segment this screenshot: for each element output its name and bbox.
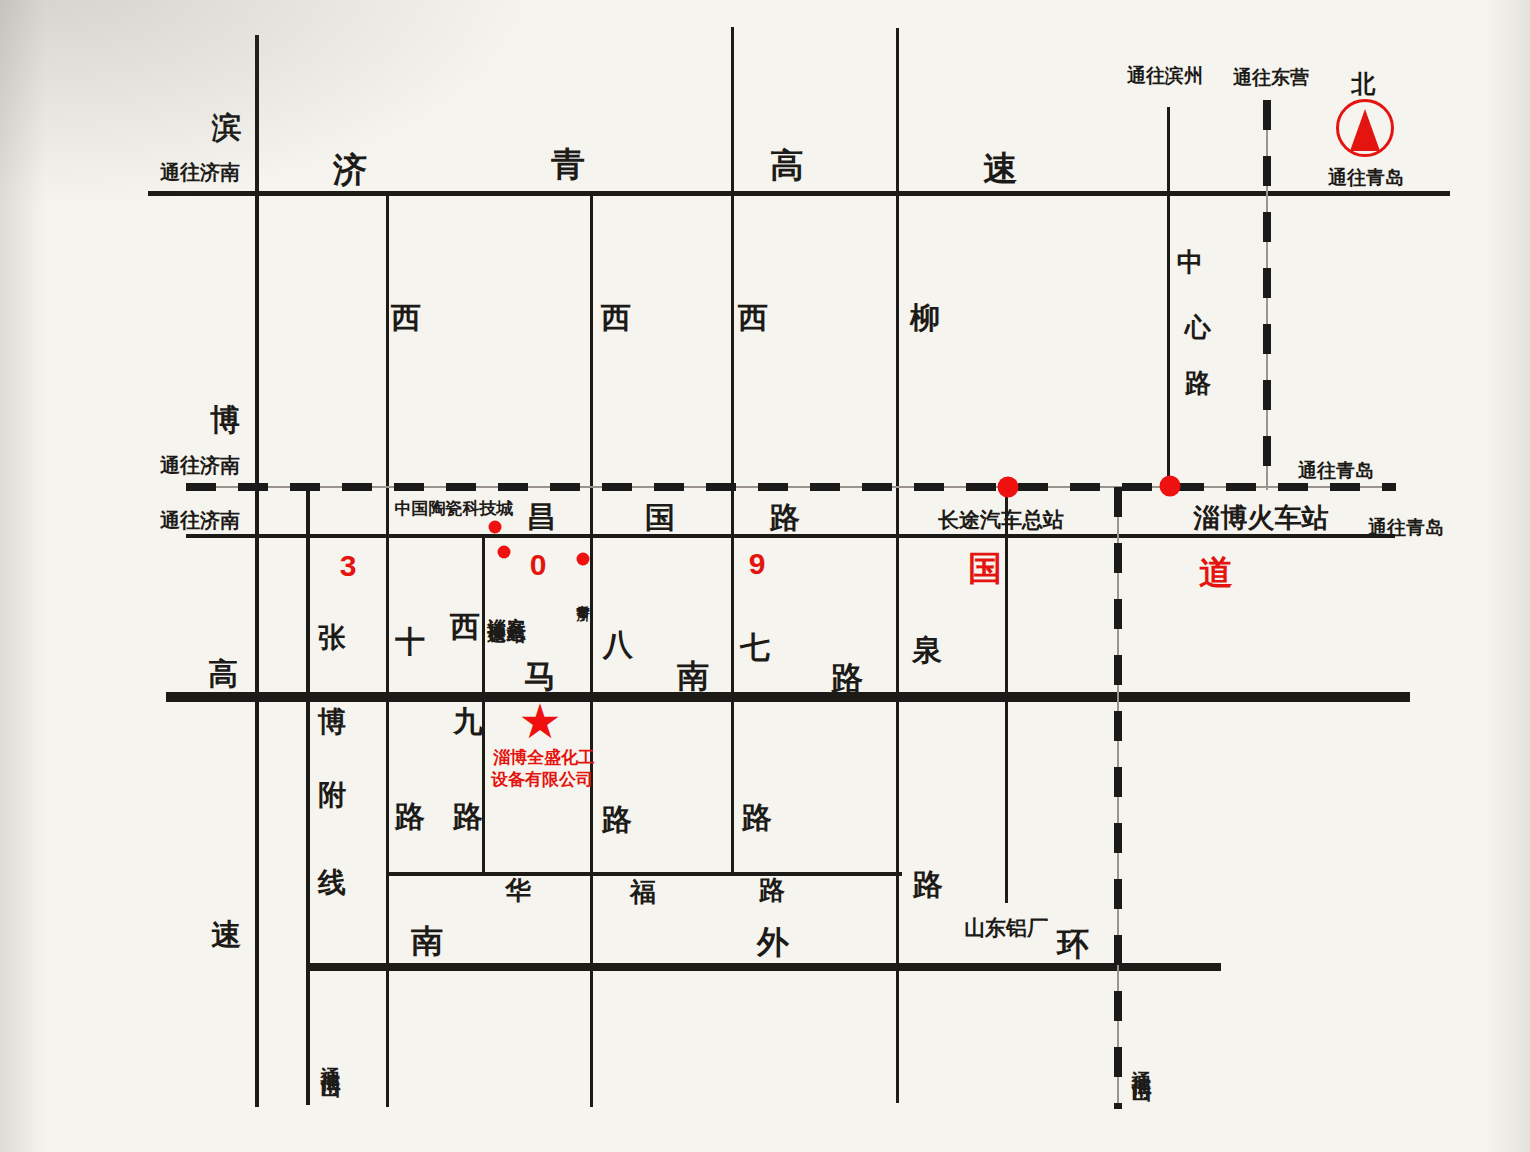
label-to-boshan-road: 通往博山	[321, 1050, 341, 1066]
poi-detention-house-dot	[577, 553, 590, 566]
railway-to-boshan	[1114, 487, 1122, 1109]
jiqing-char-su: 速	[983, 151, 1017, 185]
zhongxin-char-xin: 心	[1185, 314, 1211, 340]
xijiu-char-jiu: 九	[453, 707, 483, 737]
compass-north-label: 北	[1351, 72, 1375, 96]
route309-char-dao: 道	[1199, 555, 1233, 589]
manan-char-nan: 南	[677, 660, 709, 692]
jiqing-char-gao: 高	[770, 148, 804, 182]
zhangbo-char-xian: 线	[318, 869, 346, 897]
zhangbo-char-fu: 附	[318, 781, 346, 809]
label-to-qingdao-changguo: 通往青岛	[1368, 518, 1444, 537]
liuquan-char-quan: 泉	[912, 635, 942, 665]
railway-to-dongying	[1263, 100, 1271, 490]
label-to-qingdao-top: 通往青岛	[1328, 168, 1404, 187]
jiqing-char-qing: 青	[551, 147, 585, 181]
xiqi-char-qi: 七	[740, 633, 770, 663]
nanwaihuan-char-wai: 外	[757, 926, 789, 958]
label-to-jinan-changguo: 通往济南	[160, 510, 240, 530]
binbo-char-gao: 高	[208, 659, 238, 689]
xishi-char-lu: 路	[395, 802, 425, 832]
nanwaihuan-char-huan: 环	[1057, 928, 1089, 960]
road-xi-ba-lu	[590, 193, 593, 1107]
xiqi-char-lu: 路	[742, 803, 772, 833]
huafu-char-lu: 路	[759, 877, 785, 903]
company-name-line2: 设备有限公司	[491, 771, 593, 788]
xijiu-char-xi: 西	[450, 612, 480, 642]
huafu-char-fu: 福	[630, 879, 656, 905]
road-liuquan-lu	[896, 28, 899, 1103]
poi-bus-terminal-dot	[498, 546, 511, 559]
binbo-char-bin: 滨	[212, 113, 242, 143]
binbo-char-su: 速	[211, 920, 241, 950]
route309-char-guo: 国	[968, 551, 1002, 585]
changguo-char-chang: 昌	[526, 502, 556, 532]
manan-char-lu: 路	[831, 662, 863, 694]
changguo-char-guo: 国	[645, 503, 675, 533]
road-bus-station-spur	[1005, 487, 1008, 903]
label-to-dongying: 通往东营	[1233, 68, 1309, 87]
poi-bus-station-dot	[998, 477, 1019, 498]
poi-train-station-label: 淄博火车站	[1194, 505, 1329, 532]
railway-jinan-qingdao	[186, 483, 1396, 491]
poi-detention-house-label: 市看守所	[577, 594, 590, 598]
huafu-char-hua: 华	[505, 877, 531, 903]
xiba-char-ba: 八	[603, 630, 633, 660]
poi-train-station-dot	[1160, 476, 1181, 497]
label-to-boshan-railway: 通往博山	[1132, 1054, 1152, 1070]
xiba-char-lu: 路	[602, 805, 632, 835]
changguo-char-lu: 路	[770, 503, 800, 533]
road-binbo-expressway	[255, 35, 259, 1107]
route309-char-3: 3	[340, 551, 357, 581]
poi-bus-terminal-label-right: 客运总站	[508, 602, 527, 610]
route309-char-0: 0	[530, 550, 547, 580]
poi-aluminum-plant-label: 山东铝厂	[964, 917, 1048, 938]
manan-char-ma: 马	[524, 660, 556, 692]
liuquan-char-lu: 路	[913, 870, 943, 900]
road-huafu-lu	[388, 872, 902, 876]
zhangbo-char-bo: 博	[318, 708, 346, 736]
zhangbo-char-zhang: 张	[318, 624, 346, 652]
poi-ceramic-city-label: 中国陶瓷科技城	[395, 500, 514, 517]
road-xi-shi-lu	[386, 193, 389, 1107]
road-zhongxin-lu	[1167, 107, 1170, 487]
road-jiqing-expressway	[148, 191, 1450, 196]
label-to-qingdao-railway: 通往青岛	[1298, 461, 1374, 480]
route309-char-9: 9	[749, 549, 766, 579]
location-map: 北 通往济南 通往济南 通往济南 通往青岛 通往青岛 通往青岛 通往滨州 通往东…	[0, 0, 1530, 1152]
road-manan-lu	[166, 692, 1410, 702]
label-to-jinan-railway: 通往济南	[160, 455, 240, 475]
compass-arrow-icon	[1350, 109, 1380, 151]
zhongxin-char-lu: 路	[1185, 370, 1211, 396]
company-name-line1: 淄博全盛化工	[493, 749, 595, 766]
road-zhangbo-fuxian	[306, 487, 310, 1105]
road-xi-qi-lu	[731, 27, 734, 876]
label-to-jinan-top: 通往济南	[160, 162, 240, 182]
binbo-char-bo: 博	[210, 405, 240, 435]
poi-bus-station-label: 长途汽车总站	[938, 509, 1064, 530]
zhongxin-char-zhong: 中	[1177, 249, 1203, 275]
road-changguo-lu	[186, 534, 1395, 538]
jiqing-char-ji: 济	[333, 152, 367, 186]
nanwaihuan-char-nan: 南	[411, 925, 443, 957]
liuquan-char-liu: 柳	[910, 303, 940, 333]
road-nan-waihuan	[308, 963, 1221, 971]
xijiu-char-lu: 路	[453, 802, 483, 832]
company-star-icon: ★	[518, 698, 561, 746]
poi-ceramic-city-dot	[489, 521, 502, 534]
xishi-char-xi: 西	[391, 303, 421, 333]
poi-bus-terminal-label-left: 淄博长途	[488, 603, 507, 611]
xiqi-char-xi: 西	[738, 303, 768, 333]
xiba-char-xi: 西	[601, 303, 631, 333]
label-to-binzhou: 通往滨州	[1127, 66, 1203, 85]
compass-north-icon	[1336, 99, 1394, 157]
xishi-char-shi: 十	[395, 627, 425, 657]
